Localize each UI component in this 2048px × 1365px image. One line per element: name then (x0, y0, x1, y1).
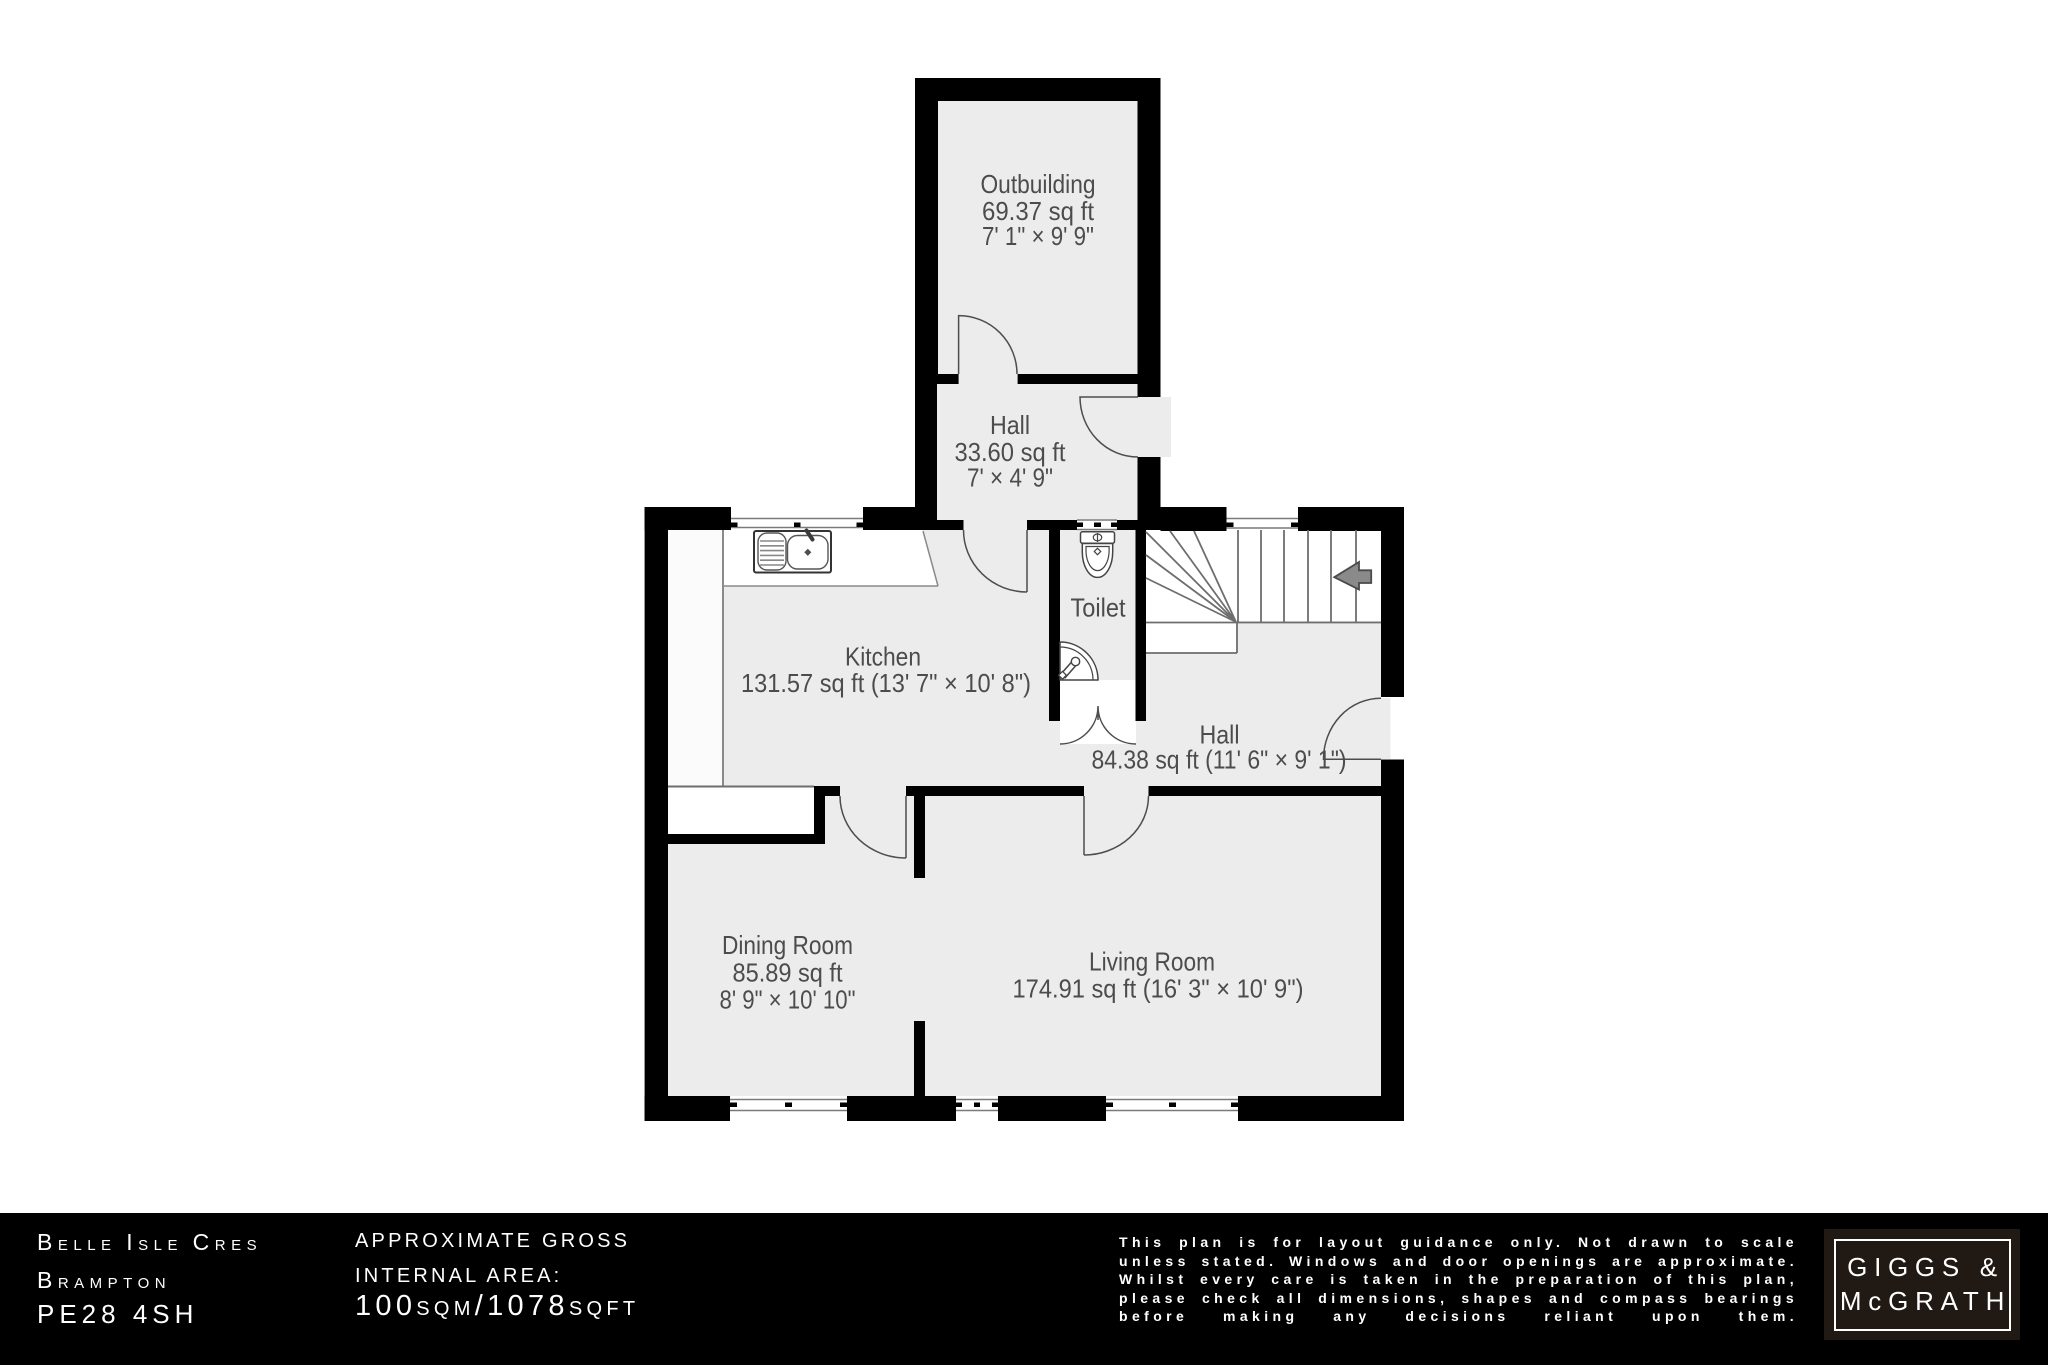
svg-text:Living Room: Living Room (1089, 946, 1215, 976)
svg-text:Outbuilding: Outbuilding (981, 169, 1096, 199)
svg-text:Toilet: Toilet (1071, 593, 1127, 623)
svg-text:Kitchen: Kitchen (845, 642, 921, 672)
svg-text:8' 9" × 10' 10": 8' 9" × 10' 10" (720, 985, 856, 1015)
svg-text:84.38 sq ft (11' 6" × 9' 1"): 84.38 sq ft (11' 6" × 9' 1") (1092, 745, 1347, 775)
svg-text:Hall: Hall (990, 410, 1030, 440)
svg-text:7' × 4' 9": 7' × 4' 9" (967, 462, 1053, 492)
svg-text:174.91 sq ft (16' 3" × 10' 9"): 174.91 sq ft (16' 3" × 10' 9") (1013, 974, 1304, 1004)
svg-text:85.89 sq ft: 85.89 sq ft (733, 958, 844, 988)
svg-text:Dining Room: Dining Room (722, 930, 853, 960)
svg-text:7' 1" × 9' 9": 7' 1" × 9' 9" (982, 221, 1094, 251)
svg-text:131.57 sq ft (13' 7" × 10' 8"): 131.57 sq ft (13' 7" × 10' 8") (741, 668, 1031, 698)
